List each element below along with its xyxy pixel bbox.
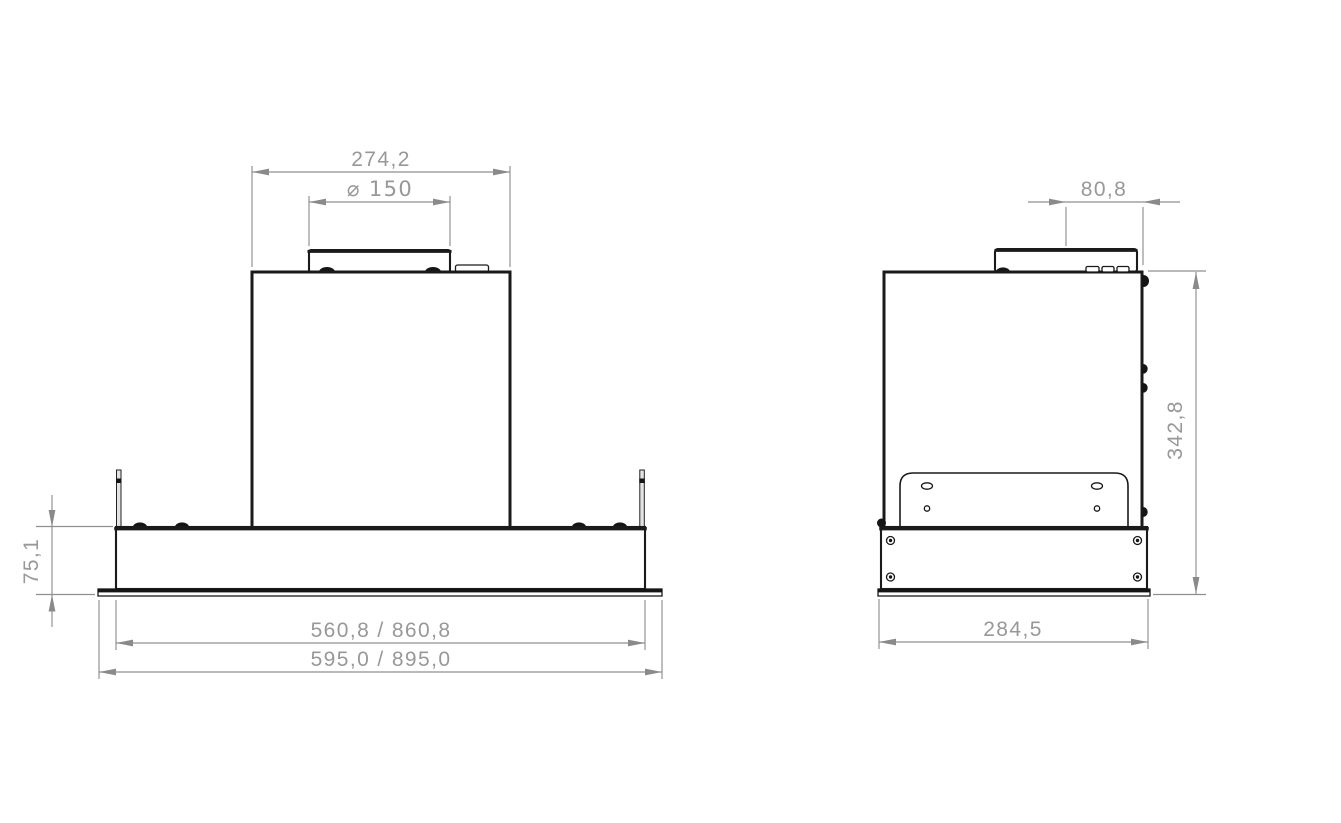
arrowhead xyxy=(879,639,896,646)
side-base-plate xyxy=(878,589,1150,596)
side-mounting-plate-outline xyxy=(900,473,1128,528)
side-view: 80,8 342,8 284,5 xyxy=(877,178,1206,649)
arrowhead xyxy=(49,510,56,527)
screw-dot xyxy=(1136,539,1139,542)
dimension-label: 284,5 xyxy=(983,618,1043,641)
bracket-clip xyxy=(116,479,122,484)
bracket-clip xyxy=(639,479,645,484)
arrowhead xyxy=(116,640,133,647)
side-edge-tab xyxy=(1142,275,1149,287)
front-mounting-bracket-right xyxy=(639,470,645,527)
dimension-label: ⌀ 150 xyxy=(347,177,413,201)
front-bottom-box xyxy=(116,527,645,589)
mounting-slot xyxy=(1092,483,1103,489)
side-duct-collar-outline xyxy=(995,249,1137,272)
arrowhead xyxy=(1143,199,1160,206)
dim-front-duct-diameter: ⌀ 150 xyxy=(309,177,450,246)
arrowhead xyxy=(252,169,269,176)
screw-dot xyxy=(889,539,892,542)
vent-slat xyxy=(1086,267,1099,273)
side-base-plate-top-band xyxy=(878,589,1150,592)
arrowhead xyxy=(433,199,450,206)
mounting-hole xyxy=(1094,506,1099,511)
arrowhead xyxy=(645,669,662,676)
side-edge-tab xyxy=(1142,364,1148,374)
dim-side-overall-height: 342,8 xyxy=(1148,271,1206,595)
dimension-label: 75,1 xyxy=(20,538,43,584)
vent-slat xyxy=(1102,267,1114,273)
side-edge-tab xyxy=(1142,507,1148,517)
dimension-label: 274,2 xyxy=(351,148,411,171)
dim-side-overall-depth: 284,5 xyxy=(879,599,1148,649)
front-base-plate xyxy=(98,589,662,596)
side-box-screws xyxy=(887,537,1142,582)
screw-dot xyxy=(1136,575,1139,578)
side-bottom-box-outline xyxy=(881,527,1147,589)
arrowhead xyxy=(1193,577,1200,594)
arrowhead xyxy=(1131,639,1148,646)
dimension-label: 80,8 xyxy=(1081,178,1127,201)
vent-slat xyxy=(1117,267,1129,273)
dim-side-duct-offset: 80,8 xyxy=(1028,178,1180,265)
side-duct-collar xyxy=(995,249,1137,272)
side-mounting-plate xyxy=(900,473,1128,528)
technical-drawing-canvas: 274,2 ⌀ 150 75,1 560,8 / 860, xyxy=(0,0,1341,823)
drawing-page: 274,2 ⌀ 150 75,1 560,8 / 860, xyxy=(0,0,1341,823)
dim-front-inner-width: 560,8 / 860,8 xyxy=(116,600,645,650)
front-view: 274,2 ⌀ 150 75,1 560,8 / 860, xyxy=(20,148,662,679)
front-bottom-box-outline xyxy=(116,527,645,589)
arrowhead xyxy=(1193,272,1200,289)
side-vent-slats xyxy=(1086,267,1129,273)
arrowhead xyxy=(493,169,510,176)
dimension-label: 595,0 / 895,0 xyxy=(311,648,452,671)
front-base-plate-top-band xyxy=(98,589,662,592)
dimension-label: 560,8 / 860,8 xyxy=(311,619,452,642)
front-chimney-body xyxy=(252,272,510,527)
arrowhead xyxy=(99,669,116,676)
front-mounting-bracket-left xyxy=(116,470,122,527)
dimension-label: 342,8 xyxy=(1164,400,1187,460)
arrowhead xyxy=(628,640,645,647)
arrowhead xyxy=(309,199,326,206)
arrowhead xyxy=(49,595,56,612)
screw-dot xyxy=(889,575,892,578)
mounting-slot xyxy=(922,483,933,489)
side-bottom-box xyxy=(881,527,1147,589)
mounting-hole xyxy=(924,506,929,511)
side-edge-tab xyxy=(1142,383,1148,393)
arrowhead xyxy=(1049,199,1066,206)
